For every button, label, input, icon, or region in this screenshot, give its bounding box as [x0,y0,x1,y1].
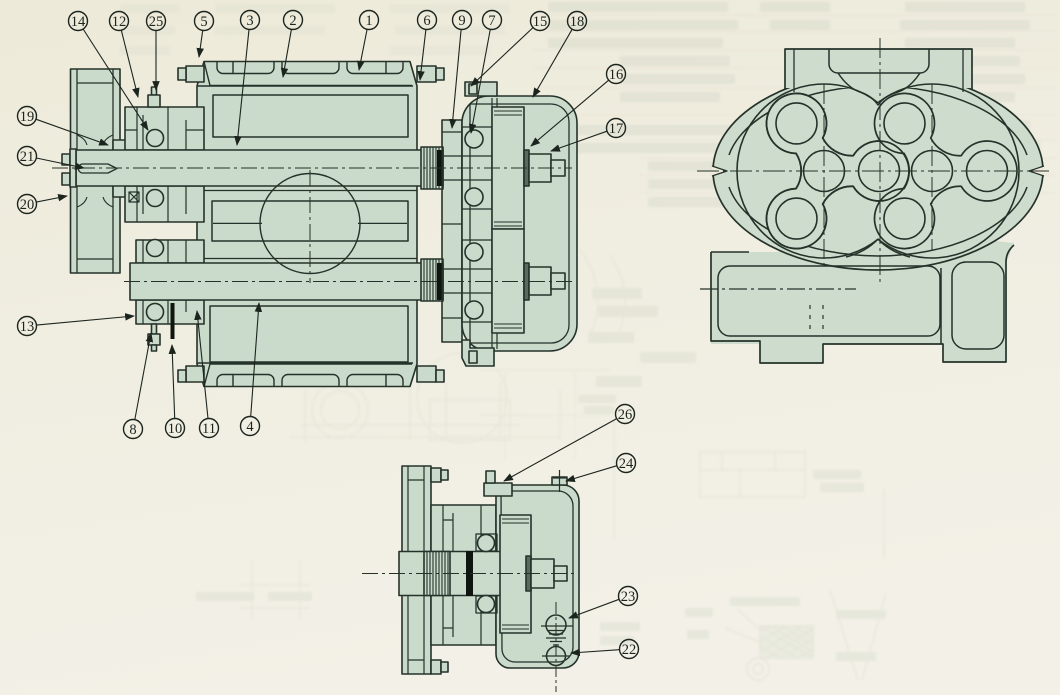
svg-text:10: 10 [168,421,183,437]
svg-text:16: 16 [609,67,624,83]
svg-text:5: 5 [200,14,207,30]
svg-text:11: 11 [202,421,216,437]
svg-text:9: 9 [458,13,465,29]
svg-text:3: 3 [246,13,253,29]
svg-text:26: 26 [618,407,633,423]
svg-text:8: 8 [129,422,136,438]
svg-text:1: 1 [365,13,372,29]
svg-text:19: 19 [20,109,35,125]
svg-text:4: 4 [246,419,254,435]
svg-text:23: 23 [621,589,636,605]
svg-text:22: 22 [622,642,637,658]
svg-text:25: 25 [149,14,164,30]
svg-text:13: 13 [20,319,35,335]
svg-text:20: 20 [20,197,35,213]
svg-text:18: 18 [570,14,585,30]
svg-text:14: 14 [71,14,86,30]
svg-text:17: 17 [609,121,624,137]
svg-text:12: 12 [112,14,127,30]
svg-text:21: 21 [20,149,35,165]
svg-text:24: 24 [619,456,634,472]
svg-text:7: 7 [488,13,495,29]
svg-text:15: 15 [533,14,548,30]
svg-text:2: 2 [289,13,296,29]
svg-text:6: 6 [423,13,430,29]
